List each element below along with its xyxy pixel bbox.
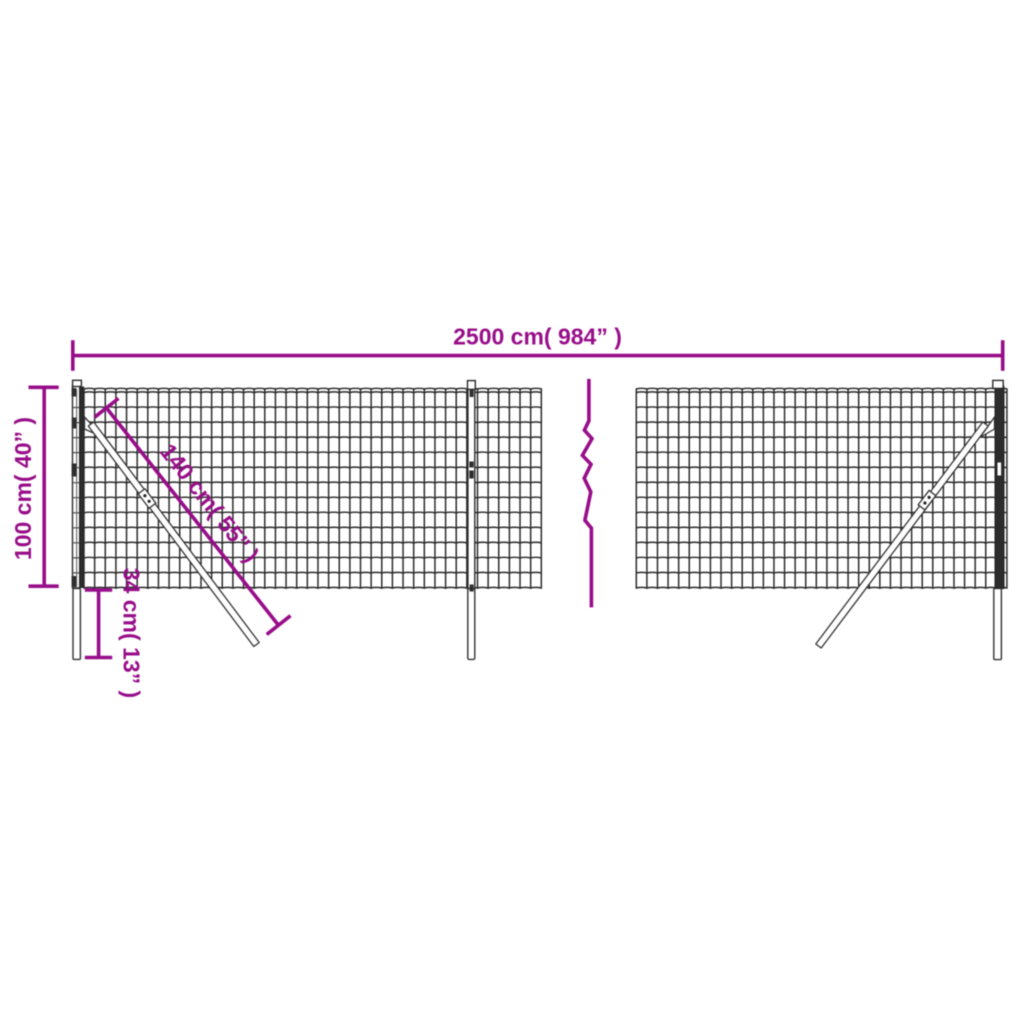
- svg-text:140 cm( 55” ): 140 cm( 55” ): [155, 439, 264, 567]
- svg-text:34 cm( 13” ): 34 cm( 13” ): [119, 568, 145, 698]
- svg-text:100 cm( 40” ): 100 cm( 40” ): [10, 417, 36, 560]
- svg-text:2500 cm( 984” ): 2500 cm( 984” ): [453, 324, 622, 350]
